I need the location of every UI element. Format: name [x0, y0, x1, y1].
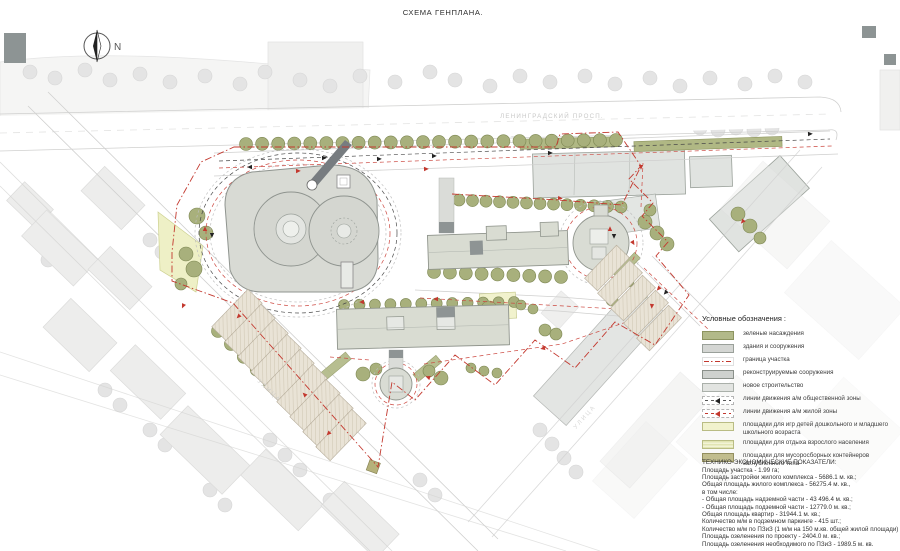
- legend-item: зеленые насаждения: [702, 330, 898, 340]
- technical-indicators: ТЕХНИКО-ЭКОНОМИЧЕСКИЕ ПОКАЗАТЕЛИ: Площад…: [702, 459, 898, 548]
- indicators-title: ТЕХНИКО-ЭКОНОМИЧЕСКИЕ ПОКАЗАТЕЛИ:: [702, 459, 898, 467]
- indicator-line: Площадь озеленения необходимого по ПЗиЗ …: [702, 541, 898, 548]
- indicator-line: Общая площадь жилого комплекса - 56275.4…: [702, 481, 898, 488]
- legend-item-label: реконструируемые сооружения: [743, 369, 833, 377]
- north-label: N: [114, 42, 121, 53]
- indicator-line: Количество м/м в подземном паркинге - 41…: [702, 518, 898, 525]
- indicator-line: - Общая площадь подземной части - 12779.…: [702, 504, 898, 511]
- legend-item-label: зеленые насаждения: [743, 330, 804, 338]
- legend-item: линии движения а/м жилой зоны: [702, 408, 898, 418]
- legend-swatch-traffic-public: [702, 396, 734, 405]
- page-title: СХЕМА ГЕНПЛАНА.: [403, 8, 484, 17]
- indicator-line: - Общая площадь надземной части - 43 496…: [702, 496, 898, 503]
- legend-swatch-buildings: [702, 344, 734, 353]
- indicator-line: Количество м/м по ПЗиЗ (1 м/м на 150 м.к…: [702, 526, 898, 533]
- indicator-line: Площадь застройки жилого комплекса - 568…: [702, 474, 898, 481]
- legend-swatch-new-construction: [702, 383, 734, 392]
- legend-swatch-green: [702, 331, 734, 340]
- legend-item: граница участка: [702, 356, 898, 366]
- legend-swatch-boundary: [702, 357, 734, 366]
- street-label-top: ЛЕНИНГРАДСКИЙ ПРОСП.: [500, 112, 604, 120]
- legend-item-label: граница участка: [743, 356, 790, 364]
- round-pavilion-south: [380, 368, 412, 400]
- legend-item-label: площадки для игр детей дошкольного и мла…: [743, 421, 898, 436]
- legend-item-label: линии движения а/м общественной зоны: [743, 395, 861, 403]
- legend-item: линии движения а/м общественной зоны: [702, 395, 898, 405]
- legend-swatch-playground: [702, 422, 734, 431]
- legend-swatch-traffic-residential: [702, 409, 734, 418]
- indicator-line: Общая площадь квартир - 31944.1 м. кв.;: [702, 511, 898, 518]
- legend-item-label: площадки для отдыха взрослого населения: [743, 439, 869, 447]
- legend-item: площадки для игр детей дошкольного и мла…: [702, 421, 898, 436]
- indicator-line: Площадь участка - 1.99 га;: [702, 467, 898, 474]
- legend-item: здания и сооружения: [702, 343, 898, 353]
- indicator-line: в том числе:: [702, 489, 898, 496]
- legend-item: новое строительство: [702, 382, 898, 392]
- legend-swatch-reconstructed: [702, 370, 734, 379]
- legend-item-label: здания и сооружения: [743, 343, 804, 351]
- residential-slab-south: [337, 305, 510, 349]
- legend-swatch-rest-area: [702, 440, 734, 449]
- legend-item: реконструируемые сооружения: [702, 369, 898, 379]
- legend-item-label: линии движения а/м жилой зоны: [743, 408, 837, 416]
- legend-item-label: новое строительство: [743, 382, 803, 390]
- legend-item: площадки для отдыха взрослого населения: [702, 439, 898, 449]
- indicator-line: Площадь озеленения по проекту - 2404.0 м…: [702, 533, 898, 540]
- genplan-sheet: N ЛЕНИНГРАДСКИЙ ПРОСП. УЛИЦА УЛИЦА СХЕМА…: [0, 0, 900, 551]
- legend-title: Условные обозначения :: [702, 314, 898, 323]
- legend: Условные обозначения : зеленые насаждени…: [702, 314, 898, 470]
